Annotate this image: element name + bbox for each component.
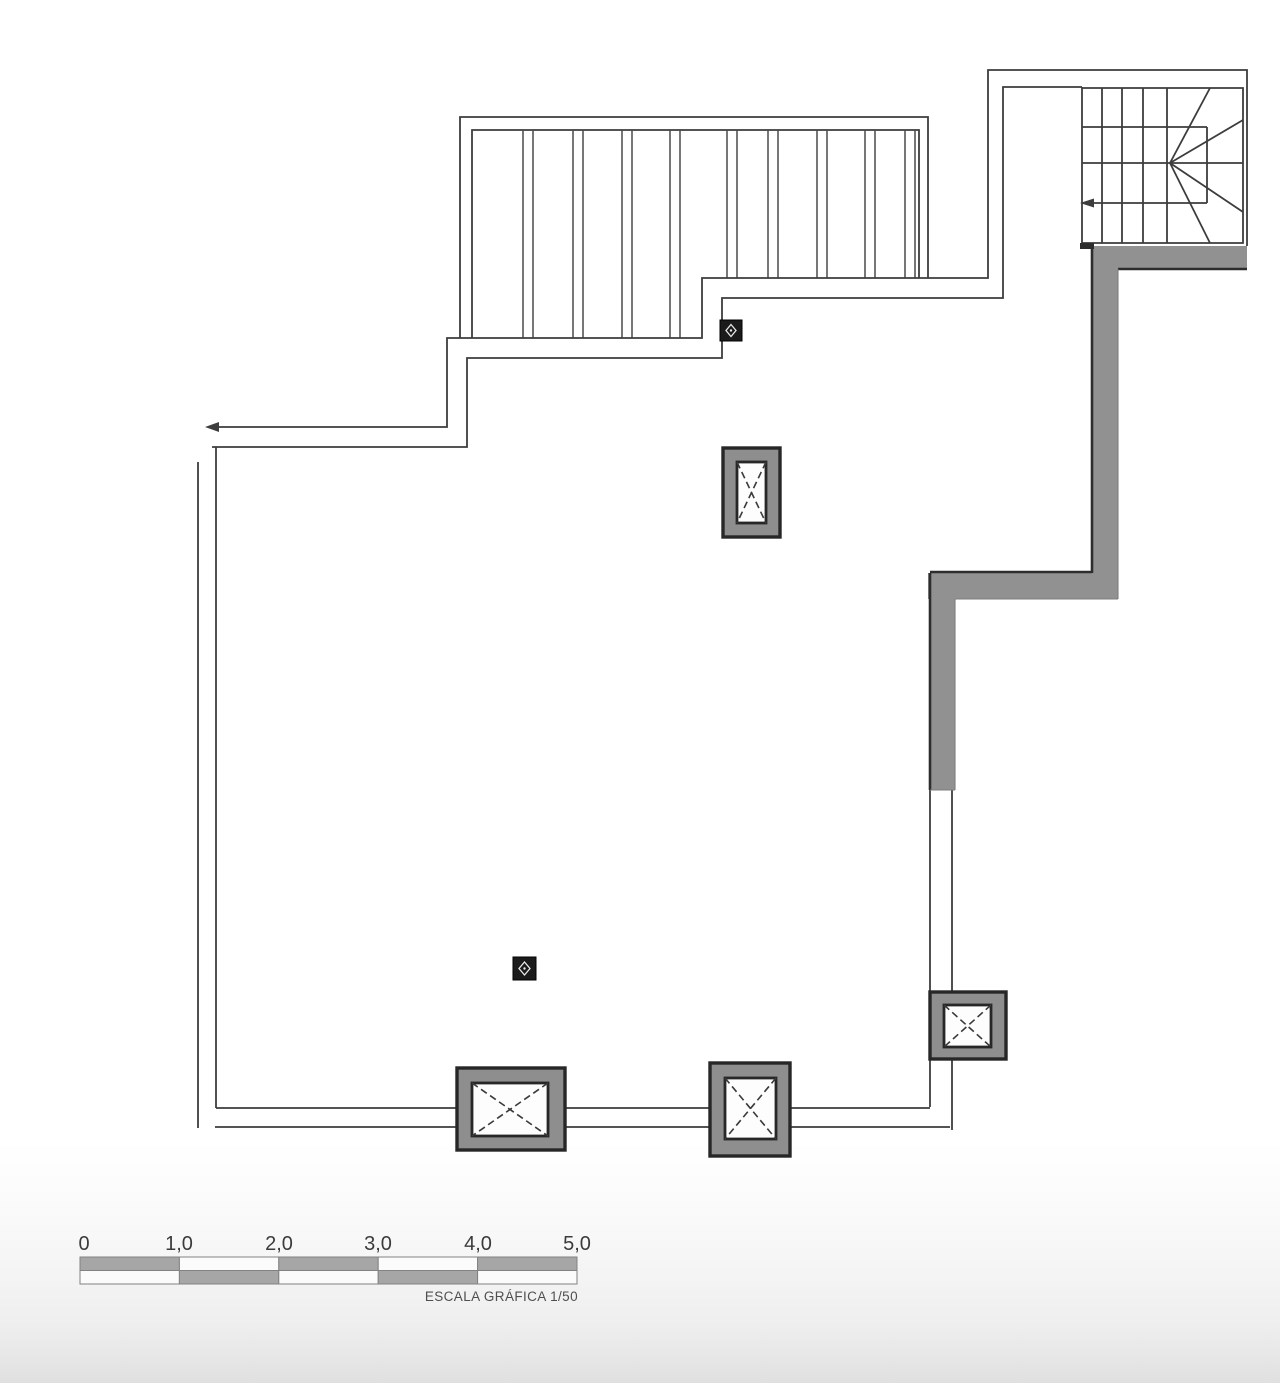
column-symbol	[930, 992, 1006, 1059]
column-symbol	[723, 448, 780, 537]
fixture-symbol	[513, 957, 536, 980]
fixture-symbol	[720, 320, 742, 341]
column-symbol	[710, 1063, 790, 1156]
scale-tick-label: 2,0	[265, 1233, 293, 1255]
gray-wall-right-vertical	[1092, 246, 1118, 573]
scale-tick-label: 5,0	[563, 1233, 591, 1255]
gray-wall-step-horizontal	[928, 573, 1118, 599]
scale-tick-label: 3,0	[364, 1233, 392, 1255]
scale-tick-label: 4,0	[464, 1233, 492, 1255]
floor-plan-canvas: 0 1,0 2,0 3,0 4,0 5,0 ESCALA GRÁFICA 1/5…	[0, 0, 1280, 1383]
scale-tick-label: 1,0	[165, 1233, 193, 1255]
stair-wall-corner-tick	[1080, 243, 1094, 249]
scale-caption: ESCALA GRÁFICA 1/50	[425, 1289, 578, 1304]
gray-wall-lower-vertical	[930, 599, 955, 790]
column-symbol	[457, 1068, 565, 1150]
scale-tick-label: 0	[78, 1233, 89, 1255]
